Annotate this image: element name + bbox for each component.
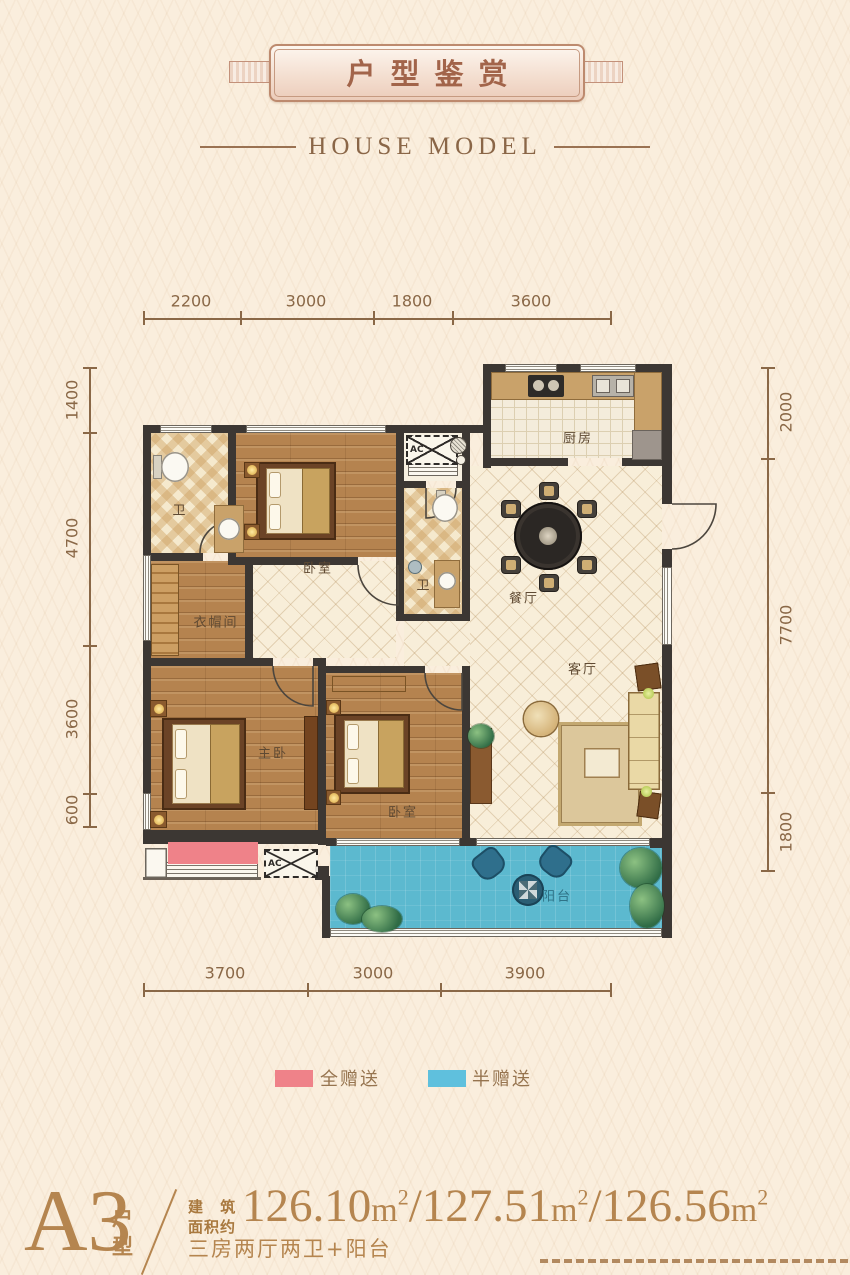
wall <box>143 553 203 561</box>
dim-tick <box>440 983 442 997</box>
sofa-icon <box>628 692 660 790</box>
ottoman-icon <box>524 702 558 736</box>
legend-swatch-full-gift <box>275 1070 313 1087</box>
dim-tick <box>143 311 145 325</box>
stove-icon <box>528 375 564 397</box>
nightstand-lamp <box>326 790 341 805</box>
wall <box>318 658 326 845</box>
room-label-balcony: 阳台 <box>542 886 572 905</box>
plant-icon <box>620 848 662 888</box>
unit-m: m <box>551 1192 577 1229</box>
corner-niche <box>145 848 167 878</box>
dining-chair <box>539 574 559 592</box>
divider-slash <box>141 1189 177 1275</box>
room-label-bedroom2: 卧室 <box>388 802 418 821</box>
sink-icon-bath1 <box>218 518 240 540</box>
room-label-bedroom1: 卧室 <box>303 558 333 577</box>
dining-chair <box>501 500 521 518</box>
title-plaque: 户型鉴赏 <box>269 44 585 102</box>
dim-tick <box>83 793 97 795</box>
wall <box>326 838 336 846</box>
table-centerpiece <box>539 527 557 545</box>
window <box>662 567 672 645</box>
ac-unit-bottom: AC <box>264 849 318 878</box>
dim-tick <box>610 983 612 997</box>
wall <box>326 666 425 673</box>
unit-sup: 2 <box>757 1184 768 1209</box>
bed-bedroom2 <box>334 714 410 794</box>
wall <box>662 845 672 938</box>
wall <box>662 645 672 845</box>
plaque-ribbon-right <box>581 61 623 83</box>
dim-right-3: 1800 <box>777 812 796 853</box>
wall <box>662 364 672 504</box>
dim-line-top <box>143 318 612 320</box>
pillow <box>175 769 187 799</box>
legend-label-half-gift: 半赠送 <box>472 1065 532 1091</box>
dim-tick <box>761 367 775 369</box>
floor-lamp-icon <box>643 688 654 699</box>
bedroom1-door-arc <box>358 565 399 606</box>
dim-top-4: 3600 <box>511 292 552 311</box>
dim-bottom-1: 3700 <box>205 964 246 983</box>
legend-label-full-gift: 全赠送 <box>320 1065 380 1091</box>
wall <box>462 666 470 845</box>
wall <box>460 838 476 846</box>
plant-icon <box>630 884 664 928</box>
blanket <box>302 468 330 534</box>
dim-tick <box>761 458 775 460</box>
dim-tick <box>761 870 775 872</box>
nightstand-lamp <box>244 462 260 478</box>
wall <box>245 561 253 658</box>
decorative-dashed-line <box>540 1259 850 1263</box>
poster-canvas: 户型鉴赏 HOUSE MODEL 2200 3000 1800 3600 370… <box>0 0 850 1275</box>
separator-slash: / <box>588 1180 601 1232</box>
nightstand-lamp <box>150 811 167 828</box>
unit-sup: 2 <box>398 1184 409 1209</box>
dim-tick <box>83 826 97 828</box>
entry-door-arc <box>672 504 718 551</box>
room-label-bath2: 卫 <box>416 575 431 594</box>
dim-line-left <box>89 367 91 828</box>
bed-bedroom1 <box>256 462 336 540</box>
area-value-1: 126.10 <box>242 1180 371 1232</box>
plaque-ribbon-left <box>229 61 271 83</box>
sink-icon <box>592 375 634 397</box>
wardrobe-icon <box>151 564 179 656</box>
plant-icon <box>468 724 494 748</box>
balcony-door-window <box>476 838 650 846</box>
toilet-icon-bath2 <box>432 494 458 522</box>
room-label-cloakroom: 衣帽间 <box>193 612 238 631</box>
separator-slash: / <box>409 1180 422 1232</box>
window <box>246 425 386 433</box>
dim-tick <box>452 311 454 325</box>
ac-label: AC <box>410 445 424 455</box>
wall <box>396 481 426 488</box>
table-top-checker <box>519 881 537 899</box>
dim-tick <box>373 311 375 325</box>
dim-left-1: 1400 <box>63 380 82 421</box>
gift-full-area <box>168 842 258 864</box>
dim-tick <box>83 432 97 434</box>
subtitle-line-right <box>554 146 650 148</box>
dining-table-icon <box>514 502 582 570</box>
pillow <box>269 472 281 498</box>
dim-top-2: 3000 <box>286 292 327 311</box>
dim-bottom-2: 3000 <box>353 964 394 983</box>
window <box>143 555 151 641</box>
window <box>580 364 636 372</box>
area-label-line1: 建 筑 <box>188 1196 241 1217</box>
dim-tick <box>761 792 775 794</box>
dim-top-3: 1800 <box>392 292 433 311</box>
balcony-door-window <box>336 838 460 846</box>
nightstand-lamp <box>244 524 260 540</box>
legend-swatch-half-gift <box>428 1070 466 1087</box>
pillow <box>347 758 359 784</box>
sink-icon-bath2 <box>438 572 456 590</box>
wall <box>322 928 330 938</box>
room-label-master: 主卧 <box>258 743 288 762</box>
blanket <box>378 720 404 788</box>
ac-unit-top: AC <box>406 435 458 465</box>
dim-right-1: 2000 <box>777 392 796 433</box>
wall <box>462 425 470 621</box>
pillow <box>269 504 281 530</box>
ac-label: AC <box>268 859 282 869</box>
dim-top-1: 2200 <box>171 292 212 311</box>
wall <box>228 433 236 515</box>
bedroom2-door-arc <box>425 673 463 711</box>
dim-left-2: 4700 <box>63 518 82 559</box>
dining-chair <box>501 556 521 574</box>
unit-m: m <box>731 1192 757 1229</box>
dim-tick <box>240 311 242 325</box>
subtitle-line-left <box>200 146 296 148</box>
hall-floor <box>404 621 470 666</box>
dining-chair <box>577 556 597 574</box>
bookshelf-icon <box>332 676 406 692</box>
window <box>160 425 212 433</box>
wall <box>143 658 273 666</box>
plant-icon <box>362 906 402 932</box>
dim-bottom-3: 3900 <box>505 964 546 983</box>
dining-chair <box>539 482 559 500</box>
area-value-2: 127.51 <box>422 1180 551 1232</box>
room-label-dining: 餐厅 <box>509 588 539 607</box>
wall <box>456 481 470 488</box>
floor-lamp-icon <box>641 786 652 797</box>
area-value-3: 126.56 <box>602 1180 731 1232</box>
page-title: 户型鉴赏 <box>271 51 583 93</box>
sink-basin <box>616 379 630 393</box>
room-label-living: 客厅 <box>568 659 598 678</box>
water-heater-small-icon <box>456 455 466 465</box>
flower-bed-grill <box>166 862 258 878</box>
burner <box>548 380 559 391</box>
wall <box>662 549 672 567</box>
dining-chair <box>577 500 597 518</box>
wall <box>483 364 491 468</box>
dim-left-4: 600 <box>63 795 82 826</box>
wall <box>491 458 568 466</box>
room-label-bath1: 卫 <box>172 500 187 519</box>
burner <box>533 380 544 391</box>
unit-sup: 2 <box>577 1184 588 1209</box>
master-door-arc <box>273 666 314 707</box>
dim-right-2: 7700 <box>777 605 796 646</box>
dim-left-3: 3600 <box>63 699 82 740</box>
unit-m: m <box>371 1192 397 1229</box>
dim-tick <box>610 311 612 325</box>
room-label-kitchen: 厨房 <box>563 428 593 447</box>
wall <box>396 614 470 621</box>
nightstand-lamp <box>150 700 167 717</box>
dim-line-right <box>767 367 769 872</box>
pillow <box>175 729 187 759</box>
coffee-table-icon <box>584 748 620 778</box>
layout-description: 三房两厅两卫+阳台 <box>188 1233 392 1263</box>
dim-line-bottom <box>143 990 612 992</box>
kitchen-counter-right <box>634 372 662 432</box>
wall <box>322 876 330 936</box>
bed-master <box>162 718 246 810</box>
dim-tick <box>83 367 97 369</box>
water-heater-icon <box>450 437 467 454</box>
plan-code-suffix: 户型 <box>112 1204 136 1263</box>
balcony-table-icon <box>512 874 544 906</box>
pillow <box>347 724 359 750</box>
sink-basin <box>596 379 610 393</box>
ac-vent-grill <box>408 464 458 476</box>
window <box>505 364 557 372</box>
subtitle-row: HOUSE MODEL <box>0 133 850 161</box>
page-subtitle: HOUSE MODEL <box>308 133 541 161</box>
dim-tick <box>83 645 97 647</box>
nightstand-lamp <box>326 700 341 715</box>
wall <box>143 425 151 555</box>
dim-tick <box>143 983 145 997</box>
wall <box>396 425 491 433</box>
shower-icon <box>408 560 422 574</box>
master-cabinet-icon <box>304 716 318 810</box>
dim-tick <box>307 983 309 997</box>
blanket <box>210 724 240 804</box>
toilet-icon-bath1 <box>161 452 189 482</box>
area-values: 126.10m2/127.51m2/126.56m2 <box>242 1178 768 1234</box>
fridge-icon <box>632 430 662 460</box>
wall <box>662 928 672 938</box>
